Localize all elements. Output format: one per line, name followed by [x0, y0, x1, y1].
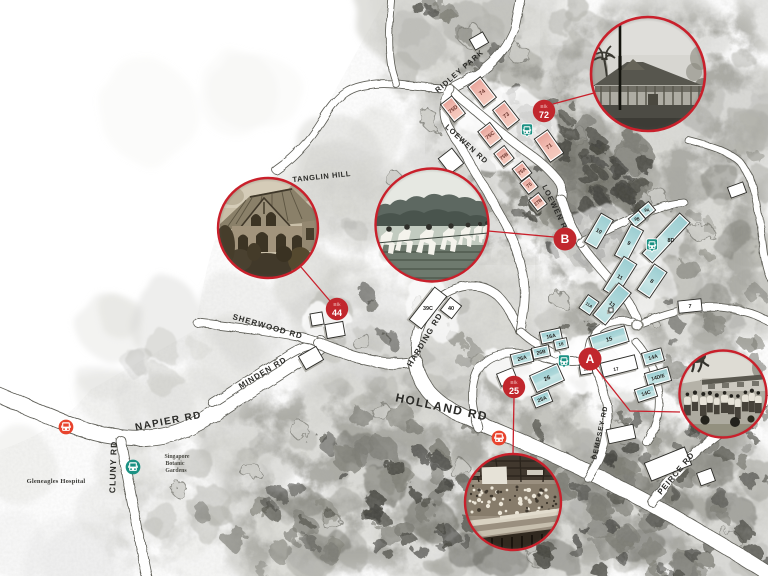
- svg-text:72: 72: [539, 110, 549, 120]
- svg-text:9B: 9B: [634, 217, 639, 222]
- svg-text:Blk: Blk: [333, 302, 341, 307]
- svg-text:Blk: Blk: [510, 380, 518, 385]
- svg-text:39C: 39C: [423, 306, 433, 312]
- svg-text:9A: 9A: [644, 208, 649, 213]
- svg-text:8D: 8D: [668, 238, 675, 244]
- svg-text:CLUNY RD: CLUNY RD: [107, 440, 119, 493]
- svg-text:B: B: [561, 232, 570, 246]
- svg-text:25: 25: [509, 386, 519, 396]
- svg-text:44: 44: [332, 308, 342, 318]
- svg-text:7: 7: [689, 304, 692, 310]
- svg-text:Gleneagles Hospital: Gleneagles Hospital: [27, 478, 86, 485]
- svg-text:40: 40: [448, 306, 454, 312]
- svg-text:A: A: [586, 352, 595, 366]
- svg-text:Blk: Blk: [540, 104, 548, 109]
